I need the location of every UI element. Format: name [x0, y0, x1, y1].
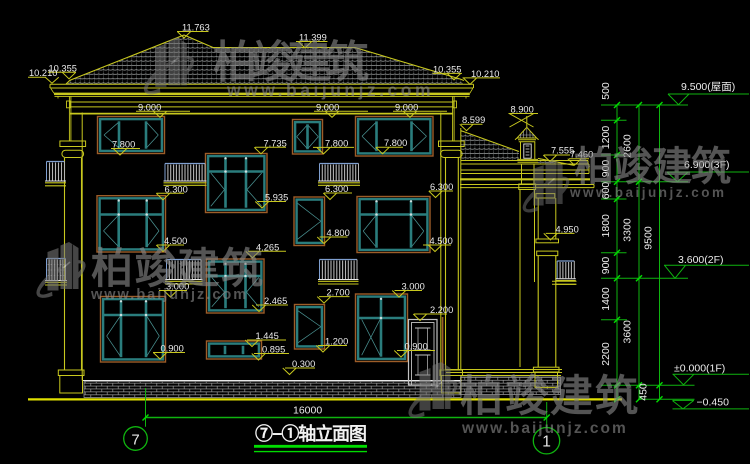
svg-text:3300: 3300 — [622, 218, 634, 242]
svg-text:3600: 3600 — [622, 320, 634, 344]
svg-text:7.800: 7.800 — [384, 138, 407, 148]
svg-text:⑦−①轴立面图: ⑦−①轴立面图 — [255, 423, 367, 444]
svg-text:900: 900 — [600, 257, 612, 275]
svg-text:9.500(屋面): 9.500(屋面) — [681, 81, 735, 93]
svg-text:1400: 1400 — [600, 287, 612, 311]
svg-text:7: 7 — [131, 432, 139, 449]
svg-text:3.600(2F): 3.600(2F) — [678, 254, 724, 266]
svg-text:9500: 9500 — [643, 226, 655, 250]
svg-text:2200: 2200 — [600, 342, 612, 366]
svg-text:±0.000(1F): ±0.000(1F) — [674, 363, 725, 375]
svg-text:16000: 16000 — [293, 405, 322, 417]
svg-text:www.baijunjz.com: www.baijunjz.com — [90, 287, 248, 303]
svg-text:450: 450 — [638, 383, 650, 401]
svg-text:500: 500 — [600, 82, 612, 100]
svg-text:1800: 1800 — [600, 214, 612, 238]
svg-text:www.baijunjz.com: www.baijunjz.com — [226, 80, 434, 100]
svg-text:柏竣建筑: 柏竣建筑 — [91, 245, 263, 292]
svg-text:www.baijunjz.com: www.baijunjz.com — [461, 420, 628, 437]
svg-text:−0.450: −0.450 — [697, 397, 730, 409]
svg-text:www.baijunjz.com: www.baijunjz.com — [569, 185, 727, 200]
svg-text:柏竣建筑: 柏竣建筑 — [574, 145, 731, 189]
